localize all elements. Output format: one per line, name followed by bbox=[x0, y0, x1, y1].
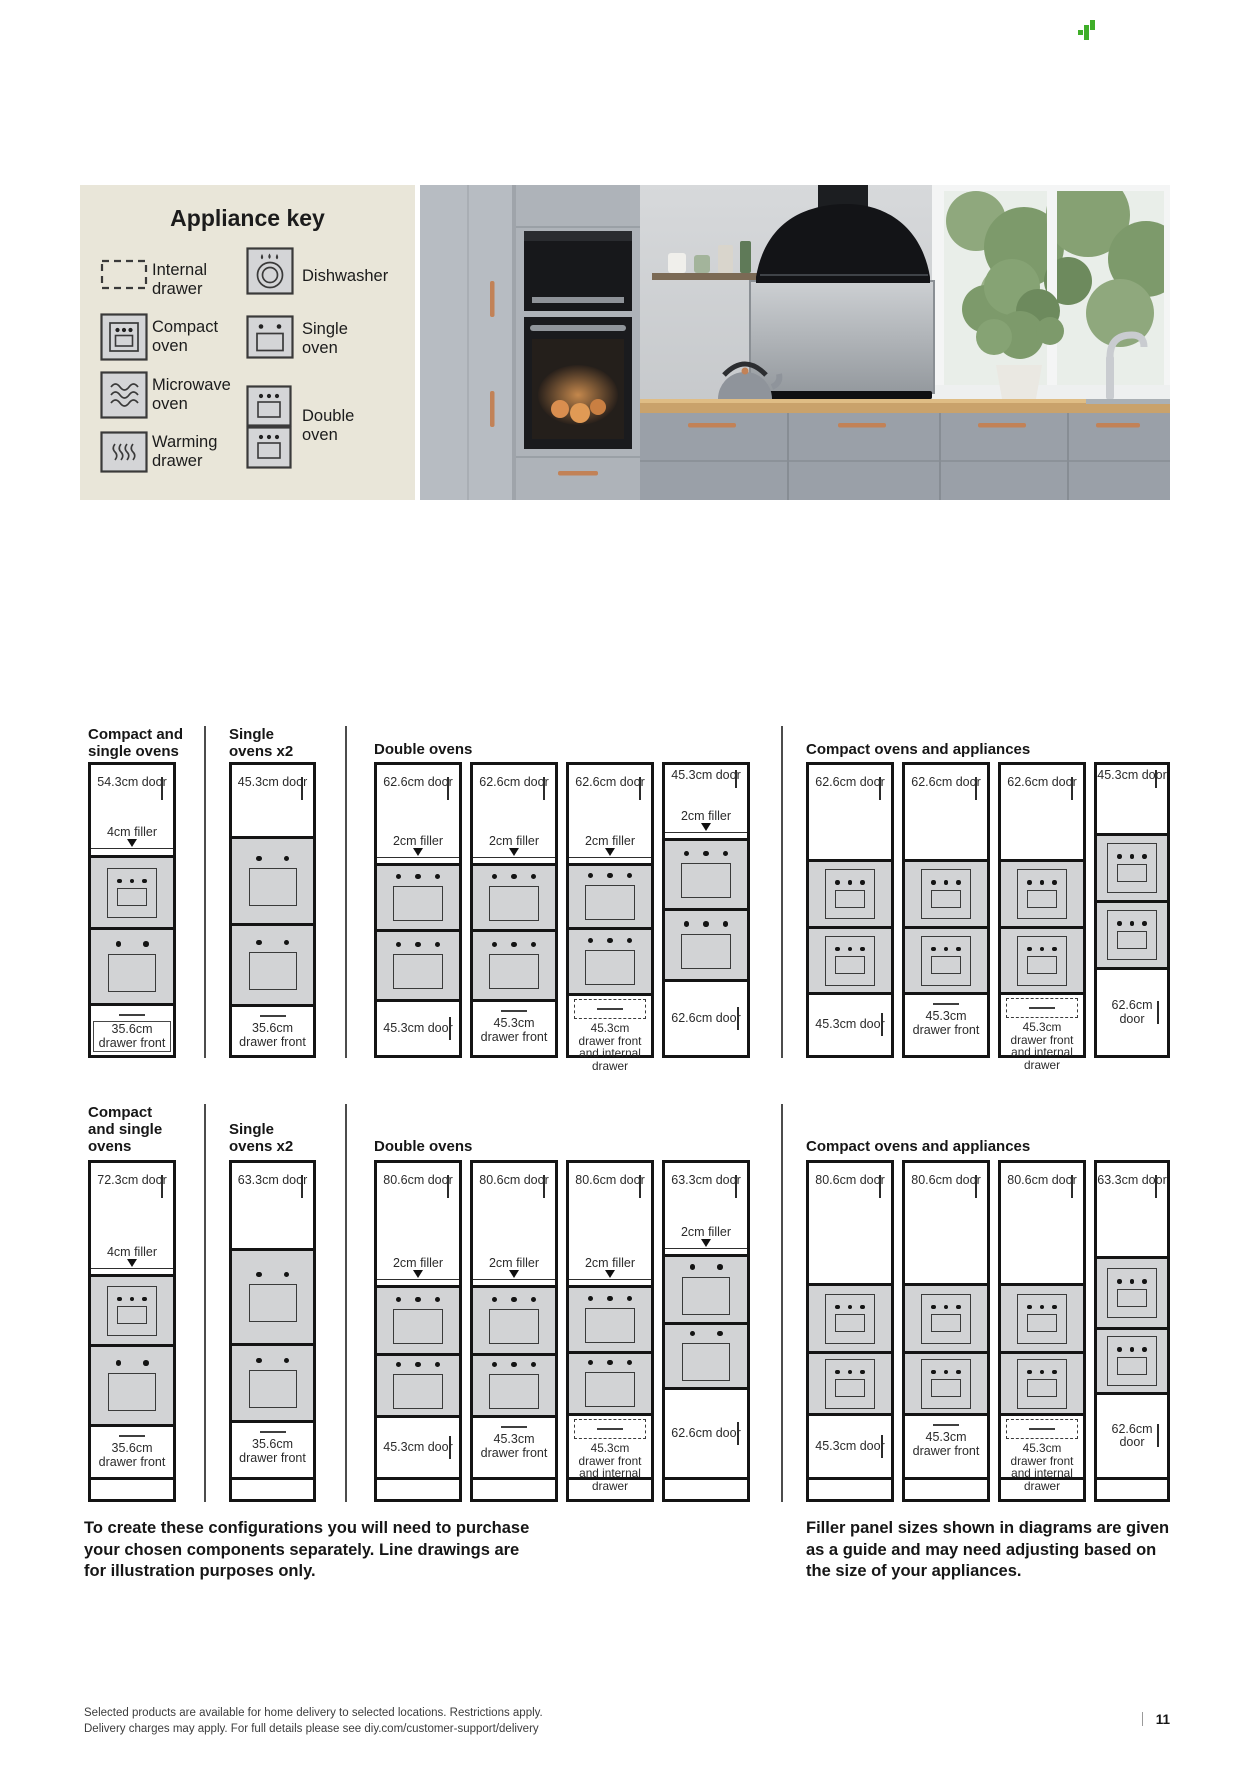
group-divider bbox=[781, 1104, 783, 1502]
filler-size-label: 4cm filler bbox=[107, 825, 157, 839]
plinth-panel bbox=[665, 1477, 747, 1499]
dimension-tick bbox=[1071, 1175, 1073, 1198]
dimension-tick bbox=[1157, 1001, 1159, 1024]
double-oven-icon bbox=[393, 1297, 443, 1345]
drawer-front-panel: 35.6cm drawer front bbox=[91, 1424, 173, 1477]
dimension-tick bbox=[449, 1436, 451, 1459]
door-size-label: 80.6cm door bbox=[815, 1173, 884, 1187]
filler-arrow-icon bbox=[509, 848, 519, 856]
single-oven-icon bbox=[108, 1360, 156, 1411]
drawer-front-panel: 35.6cm drawer front bbox=[91, 1003, 173, 1055]
door-size-label: 54.3cm door bbox=[97, 775, 166, 789]
oven-compartment bbox=[569, 1351, 651, 1413]
compact-oven-icon bbox=[825, 1359, 875, 1409]
cabinet-diagram: 62.6cm door 2cm filler 45.3cm drawer fro… bbox=[566, 762, 654, 1058]
double-oven-icon bbox=[489, 1297, 539, 1345]
door-panel: 62.6cm door 2cm filler bbox=[377, 765, 459, 857]
bottom-size-label: 45.3cm drawer front bbox=[475, 1017, 553, 1044]
dimension-tick bbox=[1071, 777, 1073, 800]
dimension-tick bbox=[1155, 1175, 1157, 1198]
bottom-size-label: 45.3cm door bbox=[383, 1022, 452, 1036]
plinth-panel bbox=[1097, 1477, 1167, 1499]
compact-oven-icon bbox=[1017, 1294, 1067, 1344]
cabinet-diagram: 80.6cm door 45.3cm drawer front bbox=[902, 1160, 990, 1502]
page-number: 11 bbox=[1110, 1712, 1170, 1727]
filler-size-label: 2cm filler bbox=[393, 834, 443, 848]
group-title: Double ovens bbox=[374, 741, 574, 758]
oven-compartment bbox=[377, 1353, 459, 1415]
door-size-label: 80.6cm door bbox=[575, 1173, 644, 1187]
oven-compartment bbox=[665, 908, 747, 979]
dimension-tick bbox=[301, 1175, 303, 1198]
oven-compartment bbox=[665, 1254, 747, 1322]
door-panel: 45.3cm door bbox=[377, 999, 459, 1055]
filler-size-label: 2cm filler bbox=[489, 834, 539, 848]
oven-compartment bbox=[1001, 926, 1083, 992]
filler-size-label: 2cm filler bbox=[681, 1225, 731, 1239]
double-oven-icon bbox=[585, 938, 635, 986]
dimension-tick bbox=[1157, 1424, 1159, 1447]
single-oven-icon bbox=[249, 940, 297, 991]
oven-compartment bbox=[377, 929, 459, 999]
bottom-size-label: 45.3cm drawer front bbox=[907, 1431, 985, 1458]
cabinet-diagram: 62.6cm door 45.3cm drawer front bbox=[902, 762, 990, 1058]
oven-compartment bbox=[1097, 900, 1167, 967]
filler-size-label: 2cm filler bbox=[585, 1256, 635, 1270]
drawer-front-panel: 45.3cm drawer front bbox=[905, 1413, 987, 1477]
door-panel: 45.3cm door bbox=[809, 992, 891, 1055]
oven-compartment bbox=[91, 1274, 173, 1344]
door-panel: 80.6cm door 2cm filler bbox=[473, 1163, 555, 1279]
door-panel: 80.6cm door 2cm filler bbox=[377, 1163, 459, 1279]
filler-arrow-icon bbox=[509, 1270, 519, 1278]
drawer-handle-line bbox=[260, 1015, 286, 1017]
bottom-size-label: 35.6cm drawer front bbox=[93, 1021, 171, 1052]
filler-arrow-icon bbox=[413, 848, 423, 856]
door-size-label: 62.6cm door bbox=[815, 775, 884, 789]
drawer-handle-line bbox=[260, 1431, 286, 1433]
door-size-label: 80.6cm door bbox=[383, 1173, 452, 1187]
oven-compartment bbox=[809, 859, 891, 926]
bottom-size-label: 35.6cm drawer front bbox=[234, 1022, 311, 1049]
bottom-size-label: 45.3cm drawer front bbox=[907, 1010, 985, 1037]
plinth-panel bbox=[91, 1477, 173, 1499]
note-right: Filler panel sizes shown in diagrams are… bbox=[806, 1518, 1174, 1583]
internal-drawer-icon bbox=[100, 259, 148, 296]
oven-compartment bbox=[473, 1353, 555, 1415]
dimension-tick bbox=[301, 777, 303, 800]
double-oven-icon bbox=[489, 942, 539, 990]
dimension-tick bbox=[737, 1007, 739, 1030]
compact-oven-icon bbox=[1017, 936, 1067, 986]
oven-compartment bbox=[569, 927, 651, 993]
oven-compartment bbox=[91, 1344, 173, 1424]
dimension-tick bbox=[639, 1175, 641, 1198]
door-panel: 80.6cm door bbox=[809, 1163, 891, 1283]
group-title: Single ovens x2 bbox=[229, 726, 309, 760]
dimension-tick bbox=[735, 1175, 737, 1198]
oven-compartment bbox=[665, 838, 747, 908]
cabinet-diagram: 63.3cm door 2cm filler 62.6cm door bbox=[662, 1160, 750, 1502]
cabinet-diagram: 62.6cm door 2cm filler 45.3cm drawer fro… bbox=[470, 762, 558, 1058]
bottom-size-label: 62.6cm door bbox=[1099, 999, 1165, 1026]
group-title: Single ovens x2 bbox=[229, 1121, 309, 1155]
cabinet-diagram: 80.6cm door 45.3cm drawer front and inte… bbox=[998, 1160, 1086, 1502]
drawer-handle-line bbox=[597, 1428, 623, 1430]
door-panel: 62.6cm door 2cm filler bbox=[569, 765, 651, 857]
bottom-size-label: 35.6cm drawer front bbox=[234, 1438, 311, 1465]
filler-arrow-icon bbox=[701, 1239, 711, 1247]
double-oven-icon bbox=[489, 1362, 539, 1410]
drawer-handle-line bbox=[501, 1426, 527, 1428]
compact-oven-icon bbox=[1107, 843, 1157, 893]
oven-compartment bbox=[1001, 859, 1083, 926]
door-size-label: 62.6cm door bbox=[383, 775, 452, 789]
door-size-label: 80.6cm door bbox=[1007, 1173, 1076, 1187]
door-size-label: 63.3cm door bbox=[671, 1173, 740, 1187]
drawer-front-panel: 45.3cm drawer front and internal drawer bbox=[1001, 992, 1083, 1055]
compact-oven-icon bbox=[1017, 1359, 1067, 1409]
compact-oven-icon bbox=[825, 936, 875, 986]
compact-oven-icon bbox=[107, 1286, 157, 1336]
warming-drawer-icon bbox=[100, 431, 148, 478]
oven-compartment bbox=[91, 927, 173, 1003]
door-panel: 45.3cm door 2cm filler bbox=[665, 765, 747, 832]
bottom-size-label: 62.6cm door bbox=[671, 1427, 740, 1441]
oven-compartment bbox=[1097, 833, 1167, 900]
door-size-label: 80.6cm door bbox=[479, 1173, 548, 1187]
double-oven-icon bbox=[489, 874, 539, 922]
key-label-dishwasher: Dishwasher bbox=[302, 267, 412, 286]
filler-arrow-icon bbox=[127, 839, 137, 847]
cabinet-diagram: 54.3cm door 4cm filler 35.6cm drawer fro… bbox=[88, 762, 176, 1058]
double-oven-icon bbox=[585, 1296, 635, 1344]
oven-compartment bbox=[91, 855, 173, 927]
oven-compartment bbox=[569, 1285, 651, 1351]
internal-drawer-dashed-box bbox=[1006, 998, 1078, 1018]
door-size-label: 45.3cm door bbox=[671, 768, 740, 782]
bottom-size-label: 45.3cm door bbox=[815, 1018, 884, 1032]
compact-oven-icon bbox=[107, 868, 157, 918]
compact-oven-icon bbox=[825, 1294, 875, 1344]
group-title: Compact and single ovens bbox=[88, 726, 206, 760]
bottom-size-label: 62.6cm door bbox=[671, 1012, 740, 1026]
filler-arrow-icon bbox=[605, 1270, 615, 1278]
double-oven-icon bbox=[393, 874, 443, 922]
dimension-tick bbox=[879, 1175, 881, 1198]
page-number-value: 11 bbox=[1156, 1712, 1170, 1727]
dimension-tick bbox=[881, 1013, 883, 1036]
filler-arrow-icon bbox=[605, 848, 615, 856]
drawer-front-panel: 35.6cm drawer front bbox=[232, 1420, 313, 1477]
internal-drawer-dashed-box bbox=[574, 1419, 646, 1439]
oven-compartment bbox=[1097, 1256, 1167, 1327]
cabinet-diagram: 63.3cm door 35.6cm drawer front bbox=[229, 1160, 316, 1502]
drawer-handle-line bbox=[119, 1435, 145, 1437]
catalog-page: Appliance key Internal drawer Dishwasher… bbox=[0, 0, 1250, 1768]
compact-oven-icon bbox=[921, 869, 971, 919]
single-oven-icon bbox=[682, 1264, 730, 1315]
group-divider bbox=[781, 726, 783, 1058]
dimension-tick bbox=[447, 1175, 449, 1198]
oven-compartment bbox=[905, 926, 987, 992]
brand-logo-icon bbox=[1078, 20, 1098, 45]
group-title: Compact ovens and appliances bbox=[806, 741, 1106, 758]
cabinet-diagram: 62.6cm door 2cm filler 45.3cm door bbox=[374, 762, 462, 1058]
key-label-single-oven: Single oven bbox=[302, 320, 372, 358]
drawer-handle-line bbox=[1029, 1007, 1055, 1009]
group-divider bbox=[204, 726, 206, 1058]
cabinet-diagram: 80.6cm door 2cm filler 45.3cm door bbox=[374, 1160, 462, 1502]
oven-compartment bbox=[665, 1322, 747, 1387]
door-panel: 62.6cm door bbox=[1097, 967, 1167, 1055]
bottom-size-label: 45.3cm door bbox=[383, 1441, 452, 1455]
group-divider bbox=[345, 1104, 347, 1502]
oven-compartment bbox=[905, 1283, 987, 1351]
plinth-panel bbox=[377, 1477, 459, 1499]
drawer-front-panel: 45.3cm drawer front and internal drawer bbox=[569, 1413, 651, 1477]
bottom-size-label: 45.3cm drawer front and internal drawer bbox=[1003, 1021, 1081, 1071]
filler-size-label: 2cm filler bbox=[585, 834, 635, 848]
filler-panel bbox=[91, 848, 173, 855]
drawer-handle-line bbox=[501, 1010, 527, 1012]
double-oven-icon bbox=[393, 1362, 443, 1410]
drawer-front-panel: 45.3cm drawer front bbox=[905, 992, 987, 1055]
bottom-size-label: 45.3cm drawer front and internal drawer bbox=[571, 1022, 649, 1072]
door-panel: 63.3cm door bbox=[1097, 1163, 1167, 1256]
oven-compartment bbox=[1001, 1283, 1083, 1351]
door-size-label: 62.6cm door bbox=[911, 775, 980, 789]
dimension-tick bbox=[449, 1017, 451, 1040]
dimension-tick bbox=[447, 777, 449, 800]
door-panel: 45.3cm door bbox=[377, 1415, 459, 1477]
filler-size-label: 2cm filler bbox=[489, 1256, 539, 1270]
single-oven-icon bbox=[249, 856, 297, 907]
plinth-panel bbox=[905, 1477, 987, 1499]
microwave-oven-icon bbox=[100, 371, 148, 424]
door-panel: 63.3cm door bbox=[232, 1163, 313, 1248]
door-panel: 62.6cm door bbox=[665, 979, 747, 1055]
drawer-front-panel: 45.3cm drawer front bbox=[473, 1415, 555, 1477]
door-panel: 45.3cm door bbox=[1097, 765, 1167, 833]
internal-drawer-dashed-box bbox=[574, 999, 646, 1019]
bottom-size-label: 45.3cm drawer front bbox=[475, 1433, 553, 1460]
group-divider bbox=[345, 726, 347, 1058]
door-size-label: 62.6cm door bbox=[479, 775, 548, 789]
page-number-divider bbox=[1142, 1712, 1143, 1726]
filler-size-label: 2cm filler bbox=[681, 809, 731, 823]
double-oven-icon bbox=[585, 1360, 635, 1408]
group-title: Compact and single ovens bbox=[88, 1104, 170, 1155]
bottom-size-label: 62.6cm door bbox=[1099, 1423, 1165, 1450]
single-oven-icon bbox=[249, 1272, 297, 1323]
door-size-label: 72.3cm door bbox=[97, 1173, 166, 1187]
compact-oven-icon bbox=[1107, 1336, 1157, 1386]
dimension-tick bbox=[1155, 770, 1157, 788]
bottom-size-label: 45.3cm drawer front and internal drawer bbox=[571, 1442, 649, 1492]
internal-drawer-dashed-box bbox=[1006, 1419, 1078, 1439]
single-oven-icon bbox=[249, 1358, 297, 1409]
compact-oven-icon bbox=[825, 869, 875, 919]
cabinet-diagram: 45.3cm door 62.6cm door bbox=[1094, 762, 1170, 1058]
oven-compartment bbox=[232, 923, 313, 1004]
door-panel: 63.3cm door 2cm filler bbox=[665, 1163, 747, 1248]
key-label-double-oven: Double oven bbox=[302, 407, 382, 445]
door-size-label: 62.6cm door bbox=[575, 775, 644, 789]
oven-compartment bbox=[809, 926, 891, 992]
door-panel: 45.3cm door bbox=[232, 765, 313, 836]
double-oven-icon bbox=[393, 942, 443, 990]
drawer-handle-line bbox=[933, 1003, 959, 1005]
oven-compartment bbox=[905, 1351, 987, 1413]
door-size-label: 45.3cm door bbox=[238, 775, 307, 789]
double-oven-icon bbox=[246, 385, 292, 474]
key-label-microwave-oven: Microwave oven bbox=[152, 376, 252, 414]
bottom-size-label: 45.3cm door bbox=[815, 1440, 884, 1454]
door-panel: 62.6cm door bbox=[1001, 765, 1083, 859]
dimension-tick bbox=[881, 1435, 883, 1458]
footer-disclaimer: Selected products are available for home… bbox=[84, 1706, 644, 1737]
oven-compartment bbox=[377, 1285, 459, 1353]
key-label-warming-drawer: Warming drawer bbox=[152, 433, 242, 471]
door-panel: 45.3cm door bbox=[809, 1413, 891, 1477]
cabinet-diagram: 72.3cm door 4cm filler 35.6cm drawer fro… bbox=[88, 1160, 176, 1502]
dimension-tick bbox=[543, 777, 545, 800]
cabinet-diagram: 80.6cm door 2cm filler 45.3cm drawer fro… bbox=[470, 1160, 558, 1502]
plinth-panel bbox=[809, 1477, 891, 1499]
dimension-tick bbox=[639, 777, 641, 800]
door-panel: 62.6cm door bbox=[1097, 1392, 1167, 1477]
oven-compartment bbox=[1097, 1327, 1167, 1392]
drawer-front-panel: 45.3cm drawer front and internal drawer bbox=[569, 993, 651, 1055]
oven-compartment bbox=[473, 863, 555, 929]
double-oven-icon bbox=[681, 851, 731, 899]
oven-compartment bbox=[569, 863, 651, 927]
appliance-key-title: Appliance key bbox=[80, 205, 415, 232]
drawer-handle-line bbox=[597, 1008, 623, 1010]
footer-line-1: Selected products are available for home… bbox=[84, 1706, 644, 1722]
oven-compartment bbox=[232, 1343, 313, 1420]
oven-compartment bbox=[809, 1283, 891, 1351]
compact-oven-icon bbox=[1107, 910, 1157, 960]
oven-compartment bbox=[809, 1351, 891, 1413]
appliance-key-panel: Appliance key Internal drawer Dishwasher… bbox=[80, 185, 415, 500]
filler-size-label: 4cm filler bbox=[107, 1245, 157, 1259]
compact-oven-icon bbox=[1017, 869, 1067, 919]
dimension-tick bbox=[735, 770, 737, 788]
door-panel: 62.6cm door bbox=[665, 1387, 747, 1477]
note-left: To create these configurations you will … bbox=[84, 1518, 532, 1583]
bottom-size-label: 35.6cm drawer front bbox=[93, 1442, 171, 1469]
oven-compartment bbox=[232, 836, 313, 923]
cabinet-diagram: 80.6cm door 45.3cm door bbox=[806, 1160, 894, 1502]
dimension-tick bbox=[975, 777, 977, 800]
compact-oven-icon bbox=[921, 936, 971, 986]
oven-compartment bbox=[1001, 1351, 1083, 1413]
door-panel: 62.6cm door 2cm filler bbox=[473, 765, 555, 857]
cabinet-diagram: 63.3cm door 62.6cm door bbox=[1094, 1160, 1170, 1502]
footer-line-2: Delivery charges may apply. For full det… bbox=[84, 1722, 644, 1738]
dimension-tick bbox=[161, 777, 163, 800]
filler-arrow-icon bbox=[127, 1259, 137, 1267]
dishwasher-icon bbox=[246, 247, 294, 300]
single-oven-icon bbox=[246, 315, 294, 364]
dimension-tick bbox=[161, 1175, 163, 1198]
cabinet-diagram: 45.3cm door 2cm filler 62.6cm door bbox=[662, 762, 750, 1058]
door-panel: 62.6cm door bbox=[809, 765, 891, 859]
drawer-handle-line bbox=[933, 1424, 959, 1426]
drawer-front-panel: 45.3cm drawer front bbox=[473, 999, 555, 1055]
filler-arrow-icon bbox=[701, 823, 711, 831]
double-oven-icon bbox=[585, 873, 635, 921]
bottom-size-label: 45.3cm drawer front and internal drawer bbox=[1003, 1442, 1081, 1492]
door-size-label: 63.3cm door bbox=[238, 1173, 307, 1187]
door-size-label: 80.6cm door bbox=[911, 1173, 980, 1187]
group-title: Double ovens bbox=[374, 1138, 574, 1155]
group-divider bbox=[204, 1104, 206, 1502]
single-oven-icon bbox=[108, 941, 156, 992]
oven-compartment bbox=[473, 929, 555, 999]
cabinet-diagram: 62.6cm door 45.3cm door bbox=[806, 762, 894, 1058]
door-panel: 62.6cm door bbox=[905, 765, 987, 859]
oven-compartment bbox=[905, 859, 987, 926]
dimension-tick bbox=[879, 777, 881, 800]
single-oven-icon bbox=[682, 1331, 730, 1382]
key-label-internal-drawer: Internal drawer bbox=[152, 261, 244, 299]
double-oven-icon bbox=[681, 921, 731, 969]
compact-oven-icon bbox=[100, 313, 148, 366]
plinth-panel bbox=[473, 1477, 555, 1499]
cabinet-diagram: 45.3cm door 35.6cm drawer front bbox=[229, 762, 316, 1058]
oven-compartment bbox=[473, 1285, 555, 1353]
key-label-compact-oven: Compact oven bbox=[152, 318, 242, 356]
door-panel: 54.3cm door 4cm filler bbox=[91, 765, 173, 848]
dimension-tick bbox=[975, 1175, 977, 1198]
door-panel: 80.6cm door 2cm filler bbox=[569, 1163, 651, 1279]
dimension-tick bbox=[543, 1175, 545, 1198]
plinth-panel bbox=[232, 1477, 313, 1499]
drawer-front-panel: 45.3cm drawer front and internal drawer bbox=[1001, 1413, 1083, 1477]
drawer-handle-line bbox=[1029, 1428, 1055, 1430]
door-panel: 80.6cm door bbox=[1001, 1163, 1083, 1283]
drawer-front-panel: 35.6cm drawer front bbox=[232, 1004, 313, 1055]
compact-oven-icon bbox=[921, 1294, 971, 1344]
door-panel: 72.3cm door 4cm filler bbox=[91, 1163, 173, 1268]
kitchen-photo bbox=[420, 185, 1170, 500]
cabinet-diagram: 80.6cm door 2cm filler 45.3cm drawer fro… bbox=[566, 1160, 654, 1502]
dimension-tick bbox=[737, 1422, 739, 1445]
filler-size-label: 2cm filler bbox=[393, 1256, 443, 1270]
filler-arrow-icon bbox=[413, 1270, 423, 1278]
door-size-label: 62.6cm door bbox=[1007, 775, 1076, 789]
oven-compartment bbox=[377, 863, 459, 929]
compact-oven-icon bbox=[921, 1359, 971, 1409]
drawer-handle-line bbox=[119, 1014, 145, 1016]
door-panel: 80.6cm door bbox=[905, 1163, 987, 1283]
oven-compartment bbox=[232, 1248, 313, 1343]
group-title: Compact ovens and appliances bbox=[806, 1138, 1106, 1155]
compact-oven-icon bbox=[1107, 1268, 1157, 1318]
cabinet-diagram: 62.6cm door 45.3cm drawer front and inte… bbox=[998, 762, 1086, 1058]
